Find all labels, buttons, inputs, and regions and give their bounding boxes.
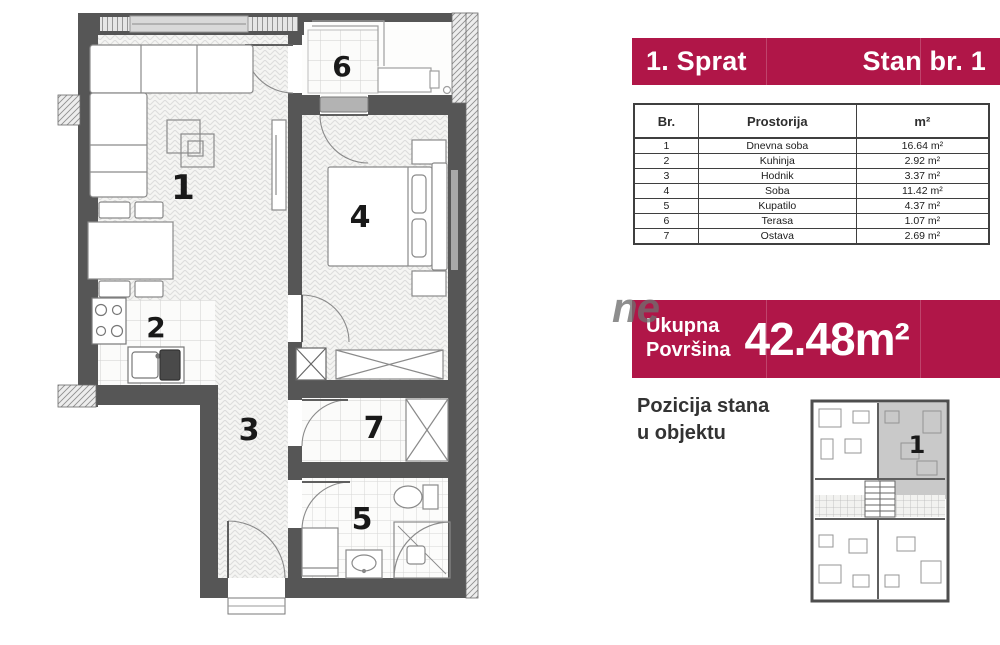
nightstand xyxy=(412,140,446,164)
building-position-plan: 1 xyxy=(805,395,955,607)
terrace-bench xyxy=(378,68,431,92)
room-area-table: Br. Prostorija m² 1Dnevna soba16.64 m² 2… xyxy=(633,103,990,245)
shaft-box xyxy=(296,348,326,380)
room-label-living: 1 xyxy=(171,168,195,208)
watermark-text: ne xyxy=(612,284,659,332)
table-row: 5Kupatilo4.37 m² xyxy=(634,199,989,214)
bedroom-window xyxy=(451,170,458,270)
room-label-bath: 5 xyxy=(352,502,373,537)
nightstand xyxy=(412,271,446,296)
mini-unit-label: 1 xyxy=(909,431,926,459)
tv-cabinet xyxy=(272,120,286,210)
total-area-value: 42.48m² xyxy=(744,312,908,366)
storage-closet xyxy=(406,399,448,461)
window-railing-left xyxy=(100,17,130,31)
table-header-row: Br. Prostorija m² xyxy=(634,104,989,138)
dining-table xyxy=(88,222,173,279)
floorplan-flyer: { "panel": { "header": { "floor": "1. Sp… xyxy=(0,0,1000,645)
room-label-kitchen: 2 xyxy=(146,311,165,344)
bath-sink xyxy=(346,550,382,578)
apartment-floor-plan: 1 2 3 4 5 6 7 xyxy=(0,0,630,645)
room-label-hall: 3 xyxy=(239,413,260,448)
sofa xyxy=(90,45,253,93)
room-label-bedroom: 4 xyxy=(350,200,371,235)
dining-chair xyxy=(99,202,130,218)
col-header-area: m² xyxy=(856,104,989,138)
floor-title: 1. Sprat xyxy=(646,46,747,77)
table-row: 1Dnevna soba16.64 m² xyxy=(634,138,989,154)
toilet xyxy=(394,486,422,508)
table-row: 7Ostava2.69 m² xyxy=(634,229,989,245)
room-label-storage: 7 xyxy=(364,411,385,446)
terrace-door-panel xyxy=(320,97,368,112)
watermark-grid-line xyxy=(920,38,921,85)
col-header-name: Prostorija xyxy=(698,104,856,138)
window-railing-right xyxy=(248,17,298,31)
position-caption: Pozicija stana u objektu xyxy=(637,393,769,447)
title-bar: 1. Sprat Stan br. 1 xyxy=(632,38,1000,85)
stove xyxy=(92,298,126,344)
mini-staircase xyxy=(865,481,895,517)
watermark-grid-line xyxy=(766,38,767,85)
table-row: 4Soba11.42 m² xyxy=(634,184,989,199)
watermark-grid-line xyxy=(920,300,921,378)
bed xyxy=(328,167,432,266)
bedroom-wardrobe xyxy=(336,350,443,379)
table-row: 6Terasa1.07 m² xyxy=(634,214,989,229)
room-label-terrace: 6 xyxy=(332,50,351,83)
entrance-threshold xyxy=(228,598,285,614)
washing-machine xyxy=(302,528,338,576)
watermark-grid-line xyxy=(766,300,767,378)
table-row: 2Kuhinja2.92 m² xyxy=(634,154,989,169)
table-row: 3Hodnik3.37 m² xyxy=(634,169,989,184)
unit-title: Stan br. 1 xyxy=(862,46,986,77)
col-header-br: Br. xyxy=(634,104,698,138)
total-area-bar: Ukupna Površina 42.48m² xyxy=(632,300,1000,378)
